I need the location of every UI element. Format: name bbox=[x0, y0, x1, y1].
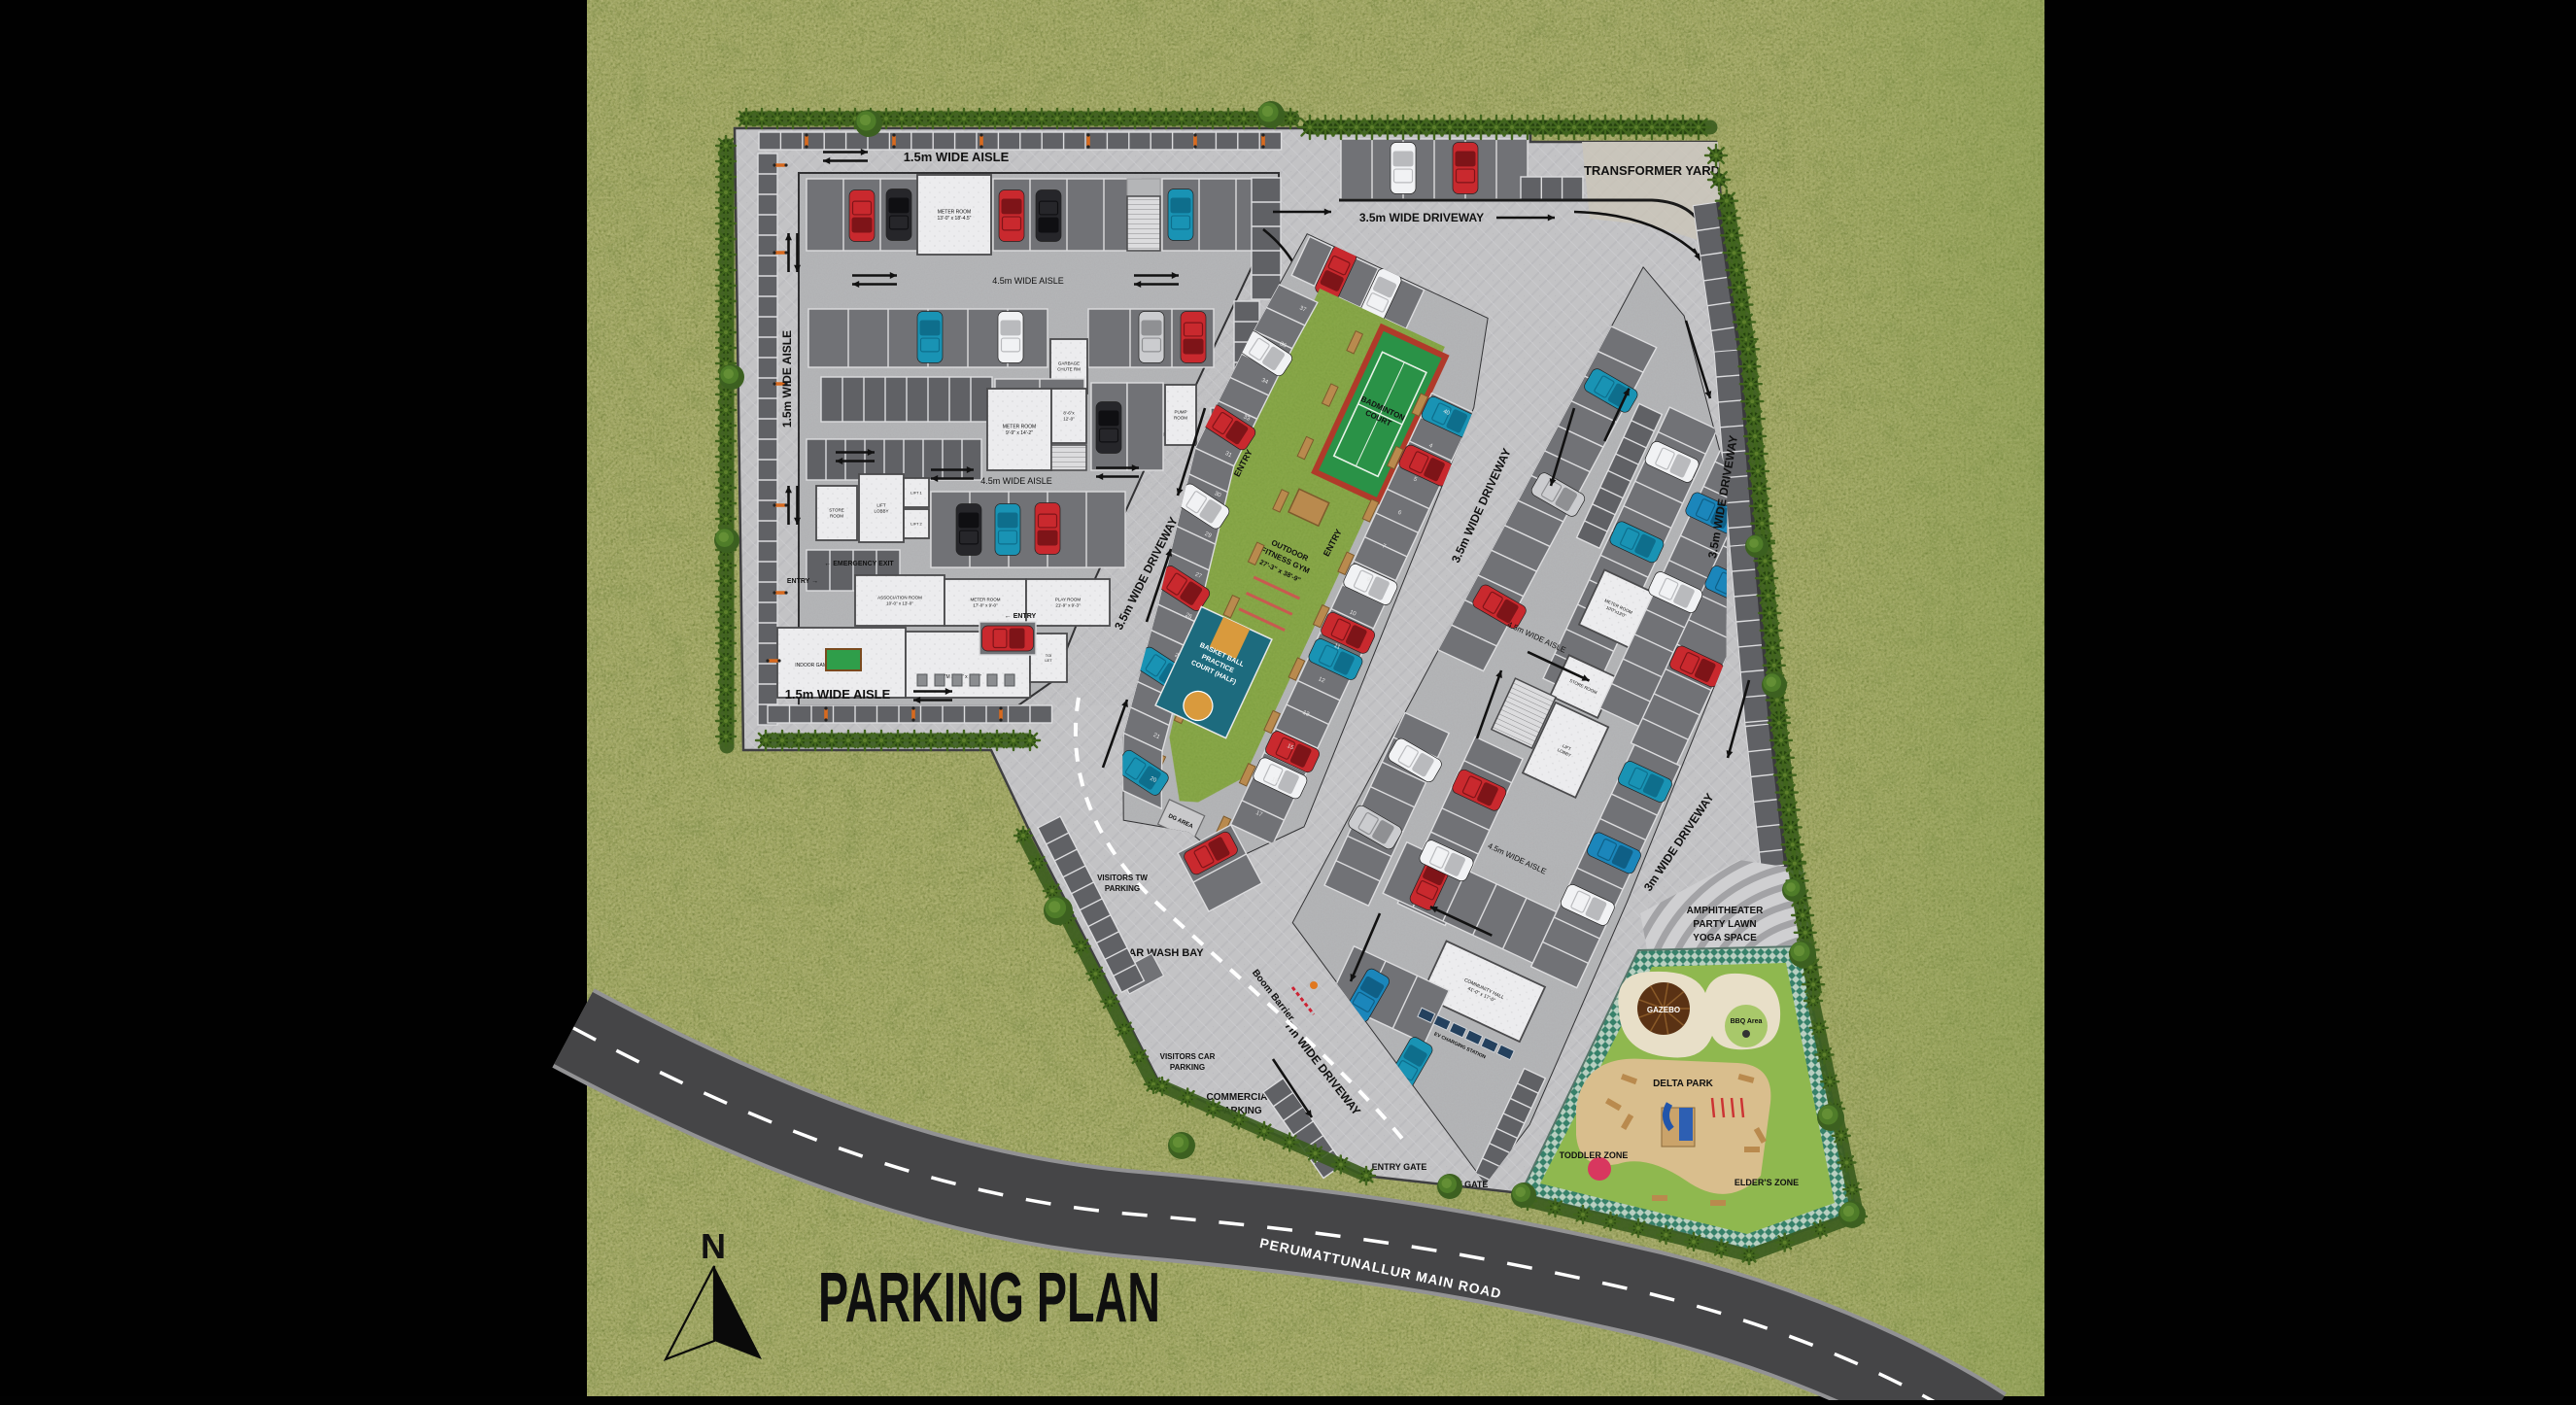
svg-text:PARKING PLAN: PARKING PLAN bbox=[818, 1259, 1160, 1337]
svg-text:METER ROOM: METER ROOM bbox=[938, 210, 971, 216]
svg-text:1.5m WIDE AISLE: 1.5m WIDE AISLE bbox=[785, 687, 891, 702]
svg-text:13'-0" x 18'-4.5": 13'-0" x 18'-4.5" bbox=[938, 216, 972, 222]
svg-text:COMMERCIAL: COMMERCIAL bbox=[1207, 1092, 1274, 1103]
svg-text:GAZEBO: GAZEBO bbox=[1647, 1006, 1680, 1014]
svg-text:LET: LET bbox=[1045, 658, 1052, 663]
svg-text:ENTRY GATE: ENTRY GATE bbox=[1372, 1162, 1427, 1172]
svg-text:LOBBY: LOBBY bbox=[874, 509, 888, 514]
svg-text:CHUTE RM: CHUTE RM bbox=[1057, 367, 1081, 372]
svg-text:PLAY ROOM: PLAY ROOM bbox=[1055, 598, 1082, 602]
svg-text:← ENTRY: ← ENTRY bbox=[1005, 613, 1037, 620]
svg-text:4.5m WIDE AISLE: 4.5m WIDE AISLE bbox=[980, 476, 1052, 486]
svg-text:VISITORS CAR: VISITORS CAR bbox=[1160, 1052, 1216, 1061]
svg-text:ENTRY →: ENTRY → bbox=[787, 578, 818, 585]
svg-text:BBQ Area: BBQ Area bbox=[1731, 1018, 1763, 1025]
svg-text:PUMP: PUMP bbox=[1174, 410, 1186, 415]
svg-text:1.5m WIDE AISLE: 1.5m WIDE AISLE bbox=[780, 330, 794, 428]
svg-text:3.5m WIDE DRIVEWAY: 3.5m WIDE DRIVEWAY bbox=[1359, 211, 1484, 224]
svg-text:4.5m WIDE AISLE: 4.5m WIDE AISLE bbox=[992, 276, 1064, 286]
svg-text:PARKING: PARKING bbox=[1105, 884, 1140, 893]
svg-text:12'-0": 12'-0" bbox=[1063, 417, 1075, 422]
svg-text:N: N bbox=[701, 1226, 726, 1266]
svg-text:METER ROOM: METER ROOM bbox=[971, 598, 1001, 602]
svg-text:DELTA PARK: DELTA PARK bbox=[1653, 1079, 1714, 1089]
svg-text:17'-0" x 9'-0": 17'-0" x 9'-0" bbox=[973, 603, 998, 608]
svg-text:STORE: STORE bbox=[829, 508, 843, 513]
svg-text:AMPHITHEATER: AMPHITHEATER bbox=[1687, 906, 1764, 916]
svg-text:8'-6"x: 8'-6"x bbox=[1063, 411, 1075, 416]
svg-text:PARTY LAWN: PARTY LAWN bbox=[1693, 919, 1756, 930]
svg-text:TODDLER ZONE: TODDLER ZONE bbox=[1560, 1150, 1629, 1160]
svg-text:10'-0" x 13'-0": 10'-0" x 13'-0" bbox=[886, 601, 913, 606]
svg-text:PARKING: PARKING bbox=[1170, 1063, 1205, 1072]
svg-text:LIFT 1: LIFT 1 bbox=[910, 490, 922, 495]
svg-text:LIFT 2: LIFT 2 bbox=[910, 521, 922, 526]
svg-text:ASSOCIATION ROOM: ASSOCIATION ROOM bbox=[877, 596, 922, 600]
svg-text:YOGA SPACE: YOGA SPACE bbox=[1693, 933, 1757, 943]
svg-text:GARBAGE: GARBAGE bbox=[1058, 361, 1080, 366]
svg-text:TRANSFORMER YARD: TRANSFORMER YARD bbox=[1584, 163, 1720, 178]
svg-text:← EMERGENCY EXIT: ← EMERGENCY EXIT bbox=[824, 561, 894, 567]
svg-text:ROOM: ROOM bbox=[1174, 416, 1187, 421]
svg-text:ROOM: ROOM bbox=[830, 514, 843, 519]
svg-text:LIFT: LIFT bbox=[876, 503, 886, 508]
svg-text:CAR WASH BAY: CAR WASH BAY bbox=[1120, 947, 1204, 959]
svg-text:1.5m WIDE AISLE: 1.5m WIDE AISLE bbox=[904, 150, 1010, 164]
svg-text:METER ROOM: METER ROOM bbox=[1003, 425, 1036, 430]
svg-text:ELDER'S ZONE: ELDER'S ZONE bbox=[1735, 1178, 1799, 1187]
svg-text:9'-9" x 14'-2": 9'-9" x 14'-2" bbox=[1006, 430, 1033, 436]
svg-text:VISITORS TW: VISITORS TW bbox=[1097, 874, 1148, 882]
svg-text:21'-9" x 9'-3": 21'-9" x 9'-3" bbox=[1055, 603, 1081, 608]
